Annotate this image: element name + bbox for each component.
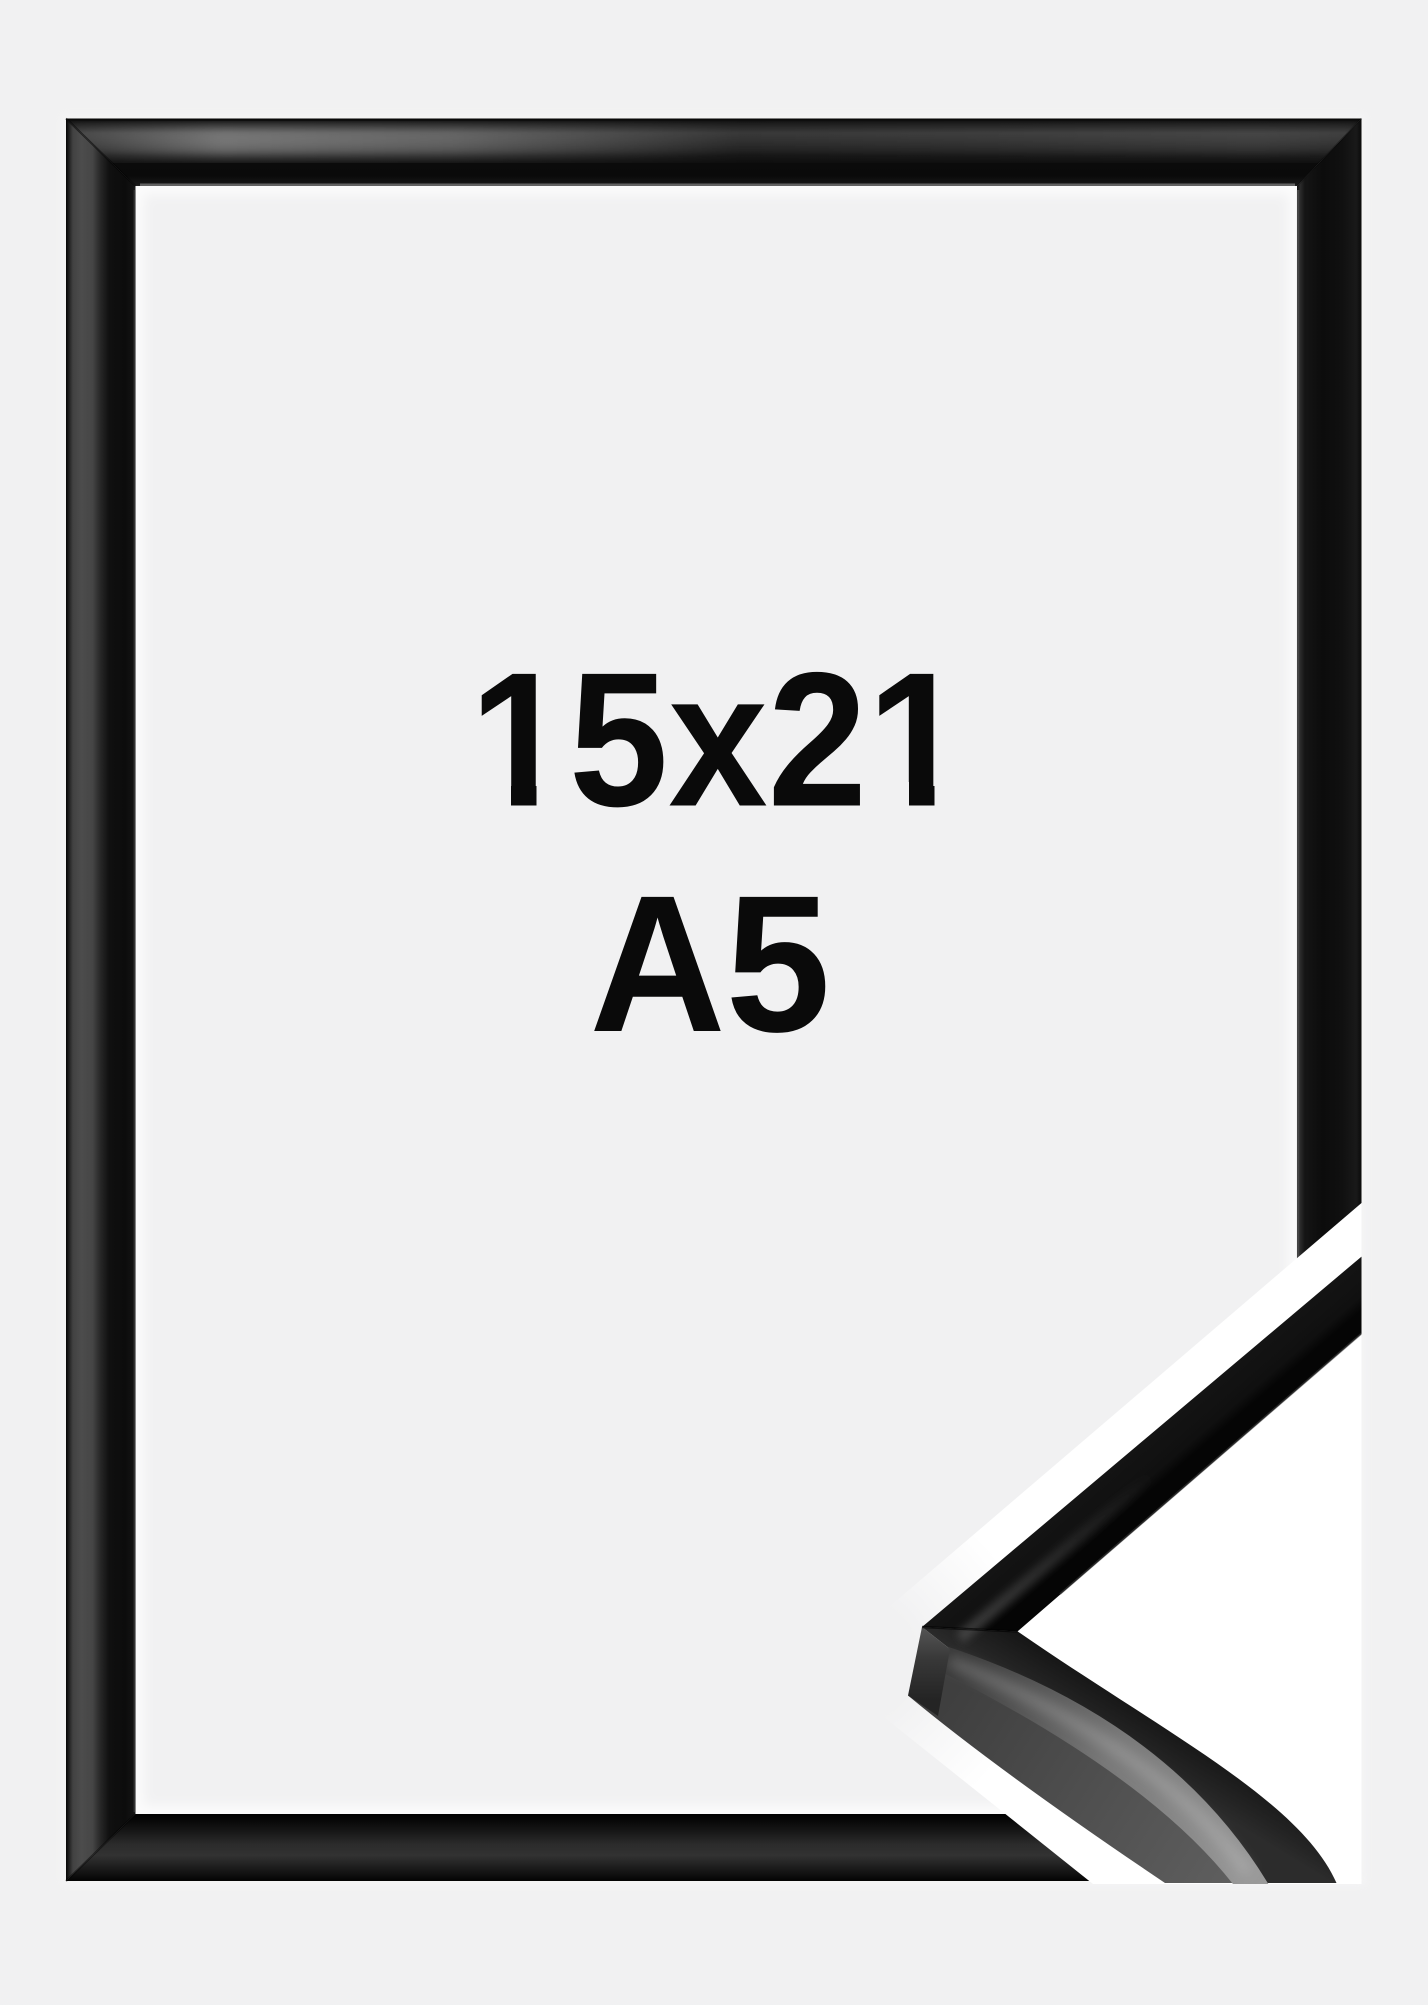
svg-text:15x21: 15x21 bbox=[470, 633, 967, 847]
svg-text:A5: A5 bbox=[590, 855, 831, 1073]
